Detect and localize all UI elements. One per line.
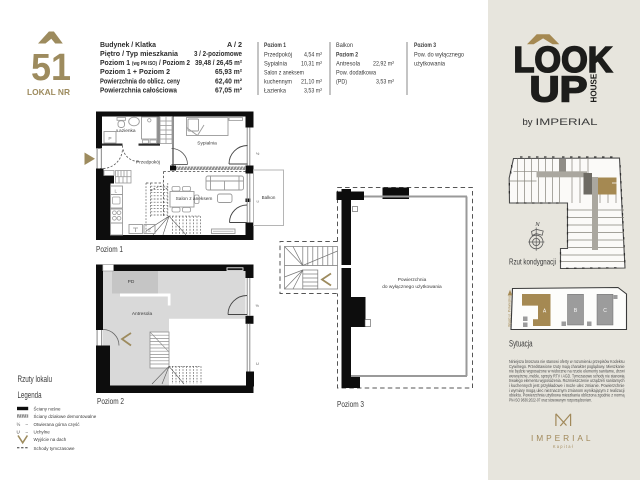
svg-text:Łazienka: Łazienka	[264, 88, 286, 95]
svg-text:(PD): (PD)	[336, 79, 347, 86]
svg-text:A / 2: A / 2	[227, 42, 242, 49]
svg-text:Powierzchnia: Powierzchnia	[398, 277, 427, 283]
svg-text:U: U	[17, 430, 20, 435]
svg-text:22,92 m²: 22,92 m²	[373, 61, 394, 68]
svg-text:IMPERIAL: IMPERIAL	[536, 117, 598, 128]
svg-text:67,05 m²: 67,05 m²	[215, 88, 243, 95]
svg-text:Poziom 1: Poziom 1	[100, 60, 130, 67]
svg-text:Wyjście na dach: Wyjście na dach	[34, 437, 67, 442]
svg-text:Przedpokój: Przedpokój	[264, 52, 292, 59]
svg-text:3,53 m²: 3,53 m²	[376, 79, 394, 86]
svg-text:Wjazd ul. Półwiejska: Wjazd ul. Półwiejska	[508, 296, 512, 327]
svg-text:Antresola: Antresola	[336, 61, 360, 68]
svg-text:Z: Z	[148, 228, 151, 233]
svg-text:Legenda: Legenda	[18, 390, 42, 400]
svg-text:IMPERIAL: IMPERIAL	[531, 433, 594, 443]
svg-text:4,54 m²: 4,54 m²	[304, 52, 322, 59]
svg-text:21,10 m²: 21,10 m²	[301, 79, 322, 86]
svg-text:C: C	[603, 308, 607, 314]
svg-text:3,53 m²: 3,53 m²	[304, 88, 322, 95]
svg-text:Przedpokój: Przedpokój	[136, 160, 160, 166]
svg-text:Powierzchnia do oblicz. ceny: Powierzchnia do oblicz. ceny	[100, 79, 180, 86]
svg-text:39,48 / 26,45 m²: 39,48 / 26,45 m²	[195, 60, 243, 67]
svg-text:3 / 2-poziomowe: 3 / 2-poziomowe	[194, 51, 242, 58]
svg-text:U: U	[256, 361, 259, 366]
svg-text:Poziom 1: Poziom 1	[264, 42, 286, 49]
svg-text:Ściany działowe demontowalne: Ściany działowe demontowalne	[34, 412, 97, 419]
svg-text:65,93 m²: 65,93 m²	[215, 69, 243, 76]
svg-text:Pow. do wyłącznego: Pow. do wyłącznego	[414, 52, 464, 59]
svg-text:Poziom 3: Poziom 3	[337, 399, 364, 409]
svg-text:Uchylne: Uchylne	[34, 430, 51, 435]
svg-text:Budynek / Klatka: Budynek / Klatka	[100, 42, 156, 49]
svg-text:½: ½	[17, 421, 21, 427]
svg-text:P: P	[108, 136, 111, 142]
svg-text:Poziom 2: Poziom 2	[336, 52, 358, 59]
svg-text:Rzut kondygnacji: Rzut kondygnacji	[509, 257, 556, 267]
svg-text:u: u	[257, 199, 259, 204]
svg-text:użytkowania: użytkowania	[414, 61, 445, 68]
svg-text:Poziom 2: Poziom 2	[97, 396, 124, 406]
svg-text:/ Poziom 2: / Poziom 2	[159, 60, 190, 67]
svg-text:Sypialnia: Sypialnia	[197, 141, 217, 147]
svg-text:Piętro / Typ mieszkania: Piętro / Typ mieszkania	[100, 51, 178, 58]
svg-text:N: N	[536, 222, 540, 228]
svg-text:Balkon: Balkon	[336, 42, 353, 49]
svg-text:Rzuty lokalu: Rzuty lokalu	[18, 374, 53, 384]
svg-text:LOKAL NR: LOKAL NR	[27, 87, 70, 97]
svg-text:Powierzchnia całościowa: Powierzchnia całościowa	[100, 88, 177, 95]
svg-text:(wg PN ISO): (wg PN ISO)	[132, 61, 157, 67]
svg-text:PN-ISO 9836:2022-07 oraz stoso: PN-ISO 9836:2022-07 oraz stosowanym rozp…	[509, 397, 592, 402]
svg-text:Schody tymczasowe: Schody tymczasowe	[34, 446, 76, 451]
svg-text:Łazienka: Łazienka	[116, 128, 136, 134]
svg-text:Poziom 1 + Poziom 2: Poziom 1 + Poziom 2	[100, 69, 170, 76]
svg-text:51: 51	[31, 47, 71, 89]
svg-text:Sytuacja: Sytuacja	[509, 339, 533, 349]
svg-text:UP: UP	[530, 69, 588, 110]
svg-text:Balkon: Balkon	[262, 195, 276, 200]
svg-text:Antresola: Antresola	[132, 311, 153, 317]
svg-text:PD: PD	[128, 279, 135, 285]
svg-text:kuchennym: kuchennym	[264, 79, 292, 86]
svg-text:by: by	[523, 117, 533, 128]
svg-text:Poziom 3: Poziom 3	[414, 42, 436, 49]
svg-text:Sypialnia: Sypialnia	[264, 61, 287, 68]
svg-text:Poziom 1: Poziom 1	[96, 244, 123, 254]
svg-text:10,31 m²: 10,31 m²	[301, 61, 322, 68]
svg-text:Otwierana górna część: Otwierana górna część	[34, 422, 81, 427]
svg-text:Salon z aneksem: Salon z aneksem	[264, 70, 304, 77]
svg-text:HOUSE: HOUSE	[590, 73, 599, 102]
svg-text:62,40 m²: 62,40 m²	[215, 79, 243, 86]
svg-text:do wyłącznego użytkowania: do wyłącznego użytkowania	[382, 284, 442, 290]
svg-text:Pow. dodatkowa: Pow. dodatkowa	[336, 70, 376, 77]
svg-text:Kapitał: Kapitał	[553, 444, 574, 449]
svg-text:Ściany nośne: Ściany nośne	[34, 405, 62, 412]
svg-text:Salon z aneksem: Salon z aneksem	[176, 196, 213, 202]
